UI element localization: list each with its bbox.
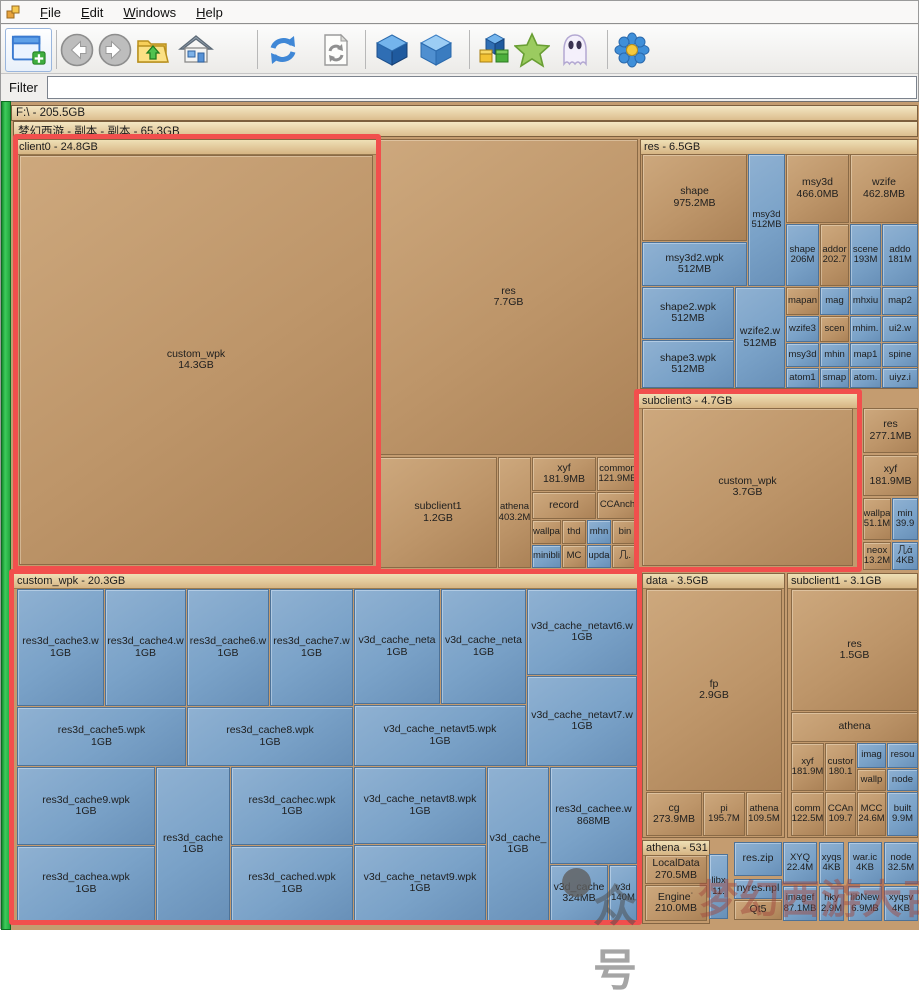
treemap-block-shape[interactable]: shape975.2MB <box>642 154 747 241</box>
treemap-block-fp[interactable]: fp2.9GB <box>646 589 782 791</box>
treemap-block-libnew[interactable]: libNew6.9MB <box>848 886 882 921</box>
treemap-block-localdata[interactable]: LocalData270.5MB <box>645 855 707 884</box>
treemap-block-shape2-wpk[interactable]: shape2.wpk512MB <box>642 287 734 339</box>
section-header[interactable]: client0 - 24.8GB <box>16 140 376 155</box>
treemap-block-war-ic[interactable]: war.ic4KB <box>848 842 882 884</box>
treemap-block-engine[interactable]: Engine˙210.0MB <box>645 885 707 921</box>
treemap-block-res3d-cache3-w[interactable]: res3d_cache3.w1GB <box>17 589 104 706</box>
treemap-block-uiyz-i[interactable]: uiyz.i <box>882 368 918 388</box>
menu-windows[interactable]: Windows <box>113 3 186 22</box>
treemap-block-v3d-cache[interactable]: v3d_cache324MB <box>550 865 608 921</box>
treemap-block-res3d-cache7-w[interactable]: res3d_cache7.w1GB <box>270 589 353 706</box>
toolbar-separator <box>56 30 57 69</box>
treemap-block-common[interactable]: common121.9MB <box>597 457 638 491</box>
treemap-block-xyf[interactable]: xyf181.9M <box>791 743 824 791</box>
treemap-block-atom1[interactable]: atom1 <box>786 368 819 388</box>
treemap-block-cg[interactable]: cg273.9MB <box>646 792 702 836</box>
treemap-block-pi[interactable]: pi195.7M <box>703 792 745 836</box>
treemap-block-scen[interactable]: scen <box>820 316 849 342</box>
treemap-block-mhn[interactable]: mhn <box>587 520 611 544</box>
treemap-block-mag[interactable]: mag <box>820 287 849 315</box>
treemap-block-smap[interactable]: smap <box>820 368 849 388</box>
treemap-block-min[interactable]: min39.9 <box>892 498 918 540</box>
treemap-block-msy3d[interactable]: msy3d <box>786 343 819 367</box>
treemap-block-resou[interactable]: resou <box>887 743 918 768</box>
treemap-block-scene[interactable]: scene193M <box>850 224 881 286</box>
treemap-block-shape[interactable]: shape206M <box>786 224 819 286</box>
refresh-icon[interactable] <box>264 31 301 68</box>
treemap-block-xyqs[interactable]: xyqs4KB <box>819 842 844 884</box>
treemap-block-res3d-cached-wpk[interactable]: res3d_cached.wpk1GB <box>231 846 353 921</box>
treemap-block-qt5[interactable]: Qt5 <box>734 900 782 920</box>
treemap-level-header-f-205-5gb[interactable]: F:\ - 205.5GB <box>11 105 918 121</box>
treemap-block-v3d-cache-neta[interactable]: v3d_cache_neta1GB <box>354 589 440 704</box>
section-header[interactable]: res - 6.5GB <box>641 140 917 155</box>
treemap-block-custor[interactable]: custor180.1 <box>825 743 856 791</box>
treemap-block-minibli[interactable]: minibli <box>532 545 561 568</box>
menu-bar: File Edit Windows Help <box>1 1 918 24</box>
treemap-block-built[interactable]: built9.9M <box>887 792 918 836</box>
treemap-block-res3d-cachec-wpk[interactable]: res3d_cachec.wpk1GB <box>231 767 353 845</box>
treemap-block-ccan[interactable]: CCAn109.7 <box>825 792 856 836</box>
treemap-block-item[interactable]: 几ά4KB <box>892 542 918 570</box>
treemap-app-window: File Edit Windows Help <box>0 0 919 929</box>
forward-icon[interactable] <box>96 31 133 68</box>
treemap-block-v3d-cache-netavt6-w[interactable]: v3d_cache_netavt6.w1GB <box>527 589 637 675</box>
treemap-block-v3d-cache-netavt9-wpk[interactable]: v3d_cache_netavt9.wpk1GB <box>354 845 486 921</box>
treemap-block-addo[interactable]: addo181M <box>882 224 918 286</box>
ghost-icon[interactable] <box>556 31 593 68</box>
treemap-block-map2[interactable]: map2 <box>882 287 918 315</box>
toolbar-separator <box>365 30 366 69</box>
section-header[interactable]: data - 3.5GB <box>643 574 784 589</box>
menu-help[interactable]: Help <box>186 3 233 22</box>
treemap-block-ui2-w[interactable]: ui2.w <box>882 316 918 342</box>
folder-up-icon[interactable] <box>134 31 171 68</box>
flower-icon[interactable] <box>613 31 650 68</box>
treemap-block-res[interactable]: res277.1MB <box>863 408 918 453</box>
menu-file[interactable]: File <box>30 3 71 22</box>
page-refresh-icon[interactable] <box>317 31 354 68</box>
treemap-block-res3d-cache8-wpk[interactable]: res3d_cache8.wpk1GB <box>187 707 353 766</box>
treemap-block-xyf[interactable]: xyf181.9MB <box>863 455 918 496</box>
treemap-block-wzife3[interactable]: wzife3 <box>786 316 819 342</box>
treemap-block-subclient1[interactable]: subclient11.2GB <box>379 457 497 568</box>
section-header[interactable]: subclient3 - 4.7GB <box>639 394 858 409</box>
treemap-block-athena[interactable]: athena403.2M <box>498 457 531 568</box>
treemap-block-res3d-cache5-wpk[interactable]: res3d_cache5.wpk1GB <box>17 707 186 766</box>
treemap-block-mapan[interactable]: mapan <box>786 287 819 315</box>
treemap-block-mhim[interactable]: mhim. <box>850 316 881 342</box>
treemap-block-shape3-wpk[interactable]: shape3.wpk512MB <box>642 340 734 388</box>
treemap-block-nyres-npl[interactable]: nyres.npl <box>734 879 782 899</box>
treemap-block-imagef[interactable]: imagef87.1MB <box>783 886 817 921</box>
treemap-block-v3d-cache-netavt5-wpk[interactable]: v3d_cache_netavt5.wpk1GB <box>354 705 526 766</box>
treemap-block-msy3d[interactable]: msy3d512MB <box>748 154 785 286</box>
section-header[interactable]: custom_wpk - 20.3GB <box>14 574 638 589</box>
treemap-block-res3d-cache9-wpk[interactable]: res3d_cache9.wpk1GB <box>17 767 155 845</box>
treemap-block-res3d-cache[interactable]: res3d_cache1GB <box>156 767 230 921</box>
toolbar <box>1 25 918 74</box>
treemap-block-thd[interactable]: thd <box>562 520 586 544</box>
treemap-block-res3d-cache4-w[interactable]: res3d_cache4.w1GB <box>105 589 186 706</box>
treemap-block-custom-wpk[interactable]: custom_wpk3.7GB <box>642 408 853 566</box>
treemap-block-wzife2-w[interactable]: wzife2.w512MB <box>735 287 785 388</box>
treemap-block-v3d-cache[interactable]: v3d_cache_1GB <box>487 767 549 921</box>
treemap-block-imag[interactable]: imag <box>857 743 886 768</box>
treemap-block-mhin[interactable]: mhin <box>820 343 849 367</box>
treemap-block-res[interactable]: res1.5GB <box>791 589 918 711</box>
treemap-block-ccanch[interactable]: CCAnch <box>597 492 638 519</box>
treemap-block-wzife[interactable]: wzife462.8MB <box>850 154 918 223</box>
treemap-block-atom[interactable]: atom. <box>850 368 881 388</box>
treemap-block-item[interactable]: 几. <box>612 545 638 568</box>
treemap-block-comm[interactable]: comm122.5M <box>791 792 824 836</box>
treemap-block-res-zip[interactable]: res.zip <box>734 842 782 876</box>
blocks-icon[interactable] <box>476 31 513 68</box>
star-icon[interactable] <box>513 31 550 68</box>
treemap-block-v3d-cache-netavt8-wpk[interactable]: v3d_cache_netavt8.wpk1GB <box>354 767 486 844</box>
section-header[interactable]: athena - 531 <box>643 841 709 856</box>
treemap-block-msy3d2-wpk[interactable]: msy3d2.wpk512MB <box>642 242 747 286</box>
treemap-level-header-65-3gb[interactable]: 梦幻西游 - 副本 - 副本 - 65.3GB <box>13 121 918 137</box>
treemap-block-custom-wpk[interactable]: custom_wpk14.3GB <box>19 155 373 565</box>
treemap-block-upda[interactable]: upda <box>587 545 611 568</box>
treemap-block-wallp[interactable]: wallp <box>857 769 886 791</box>
treemap-block-mc[interactable]: MC <box>562 545 586 568</box>
treemap-block-res3d-cache6-w[interactable]: res3d_cache6.w1GB <box>187 589 269 706</box>
filter-label: Filter <box>9 80 38 95</box>
filter-input[interactable] <box>47 76 917 99</box>
toolbar-separator <box>607 30 608 69</box>
treemap-block-bin[interactable]: bin <box>612 520 638 544</box>
treemap-block-msy3d[interactable]: msy3d466.0MB <box>786 154 849 223</box>
treemap-block-mhxiu[interactable]: mhxiu <box>850 287 881 315</box>
treemap-block-map1[interactable]: map1 <box>850 343 881 367</box>
treemap-block-mcc[interactable]: MCC24.6M <box>857 792 886 836</box>
treemap-block-res3d-cachee-w[interactable]: res3d_cachee.w868MB <box>550 767 637 864</box>
treemap-block-v3d-cache-neta[interactable]: v3d_cache_neta1GB <box>441 589 526 704</box>
menu-edit[interactable]: Edit <box>71 3 113 22</box>
app-icon <box>6 4 22 20</box>
section-header[interactable]: subclient1 - 3.1GB <box>788 574 917 589</box>
treemap-block-libx[interactable]: libx11. <box>709 854 728 919</box>
treemap-block-spine[interactable]: spine <box>882 343 918 367</box>
filter-bar: Filter <box>1 75 918 100</box>
treemap-block-v3d[interactable]: v3d140M <box>609 865 637 921</box>
toolbar-separator <box>469 30 470 69</box>
treemap-block-res3d-cachea-wpk[interactable]: res3d_cachea.wpk1GB <box>17 846 155 921</box>
treemap-block-athena[interactable]: athena <box>791 712 918 742</box>
treemap-block-v3d-cache-netavt7-w[interactable]: v3d_cache_netavt7.w1GB <box>527 676 637 766</box>
treemap-block-wallpa[interactable]: wallpa <box>532 520 561 544</box>
treemap-block-xyf[interactable]: xyf181.9MB <box>532 457 596 491</box>
treemap-block-node[interactable]: node <box>887 769 918 791</box>
cube-light-icon[interactable] <box>417 31 454 68</box>
treemap-block-hky[interactable]: hky2.9M <box>819 886 844 921</box>
cube-dark-icon[interactable] <box>373 31 410 68</box>
treemap-block-athena[interactable]: athena109.5M <box>746 792 782 836</box>
home-icon[interactable] <box>177 31 214 68</box>
treemap-block-res[interactable]: res7.7GB <box>379 139 638 455</box>
treemap-block-xyqsv[interactable]: xyqsv4KB <box>884 886 918 921</box>
toolbar-separator <box>257 30 258 69</box>
treemap-block-wallpa[interactable]: wallpa51.1M <box>863 498 891 540</box>
treemap-block-xyq[interactable]: XYQ22.4M <box>783 842 817 884</box>
treemap-block-neox[interactable]: neox13.2M <box>863 542 891 570</box>
treemap-block-node[interactable]: node32.5M <box>884 842 918 884</box>
treemap-block-addor[interactable]: addor202.7 <box>820 224 849 286</box>
back-icon[interactable] <box>58 31 95 68</box>
new-window-icon[interactable] <box>5 28 52 72</box>
treemap-block-record[interactable]: record <box>532 492 596 519</box>
free-space-strip <box>1 101 11 930</box>
